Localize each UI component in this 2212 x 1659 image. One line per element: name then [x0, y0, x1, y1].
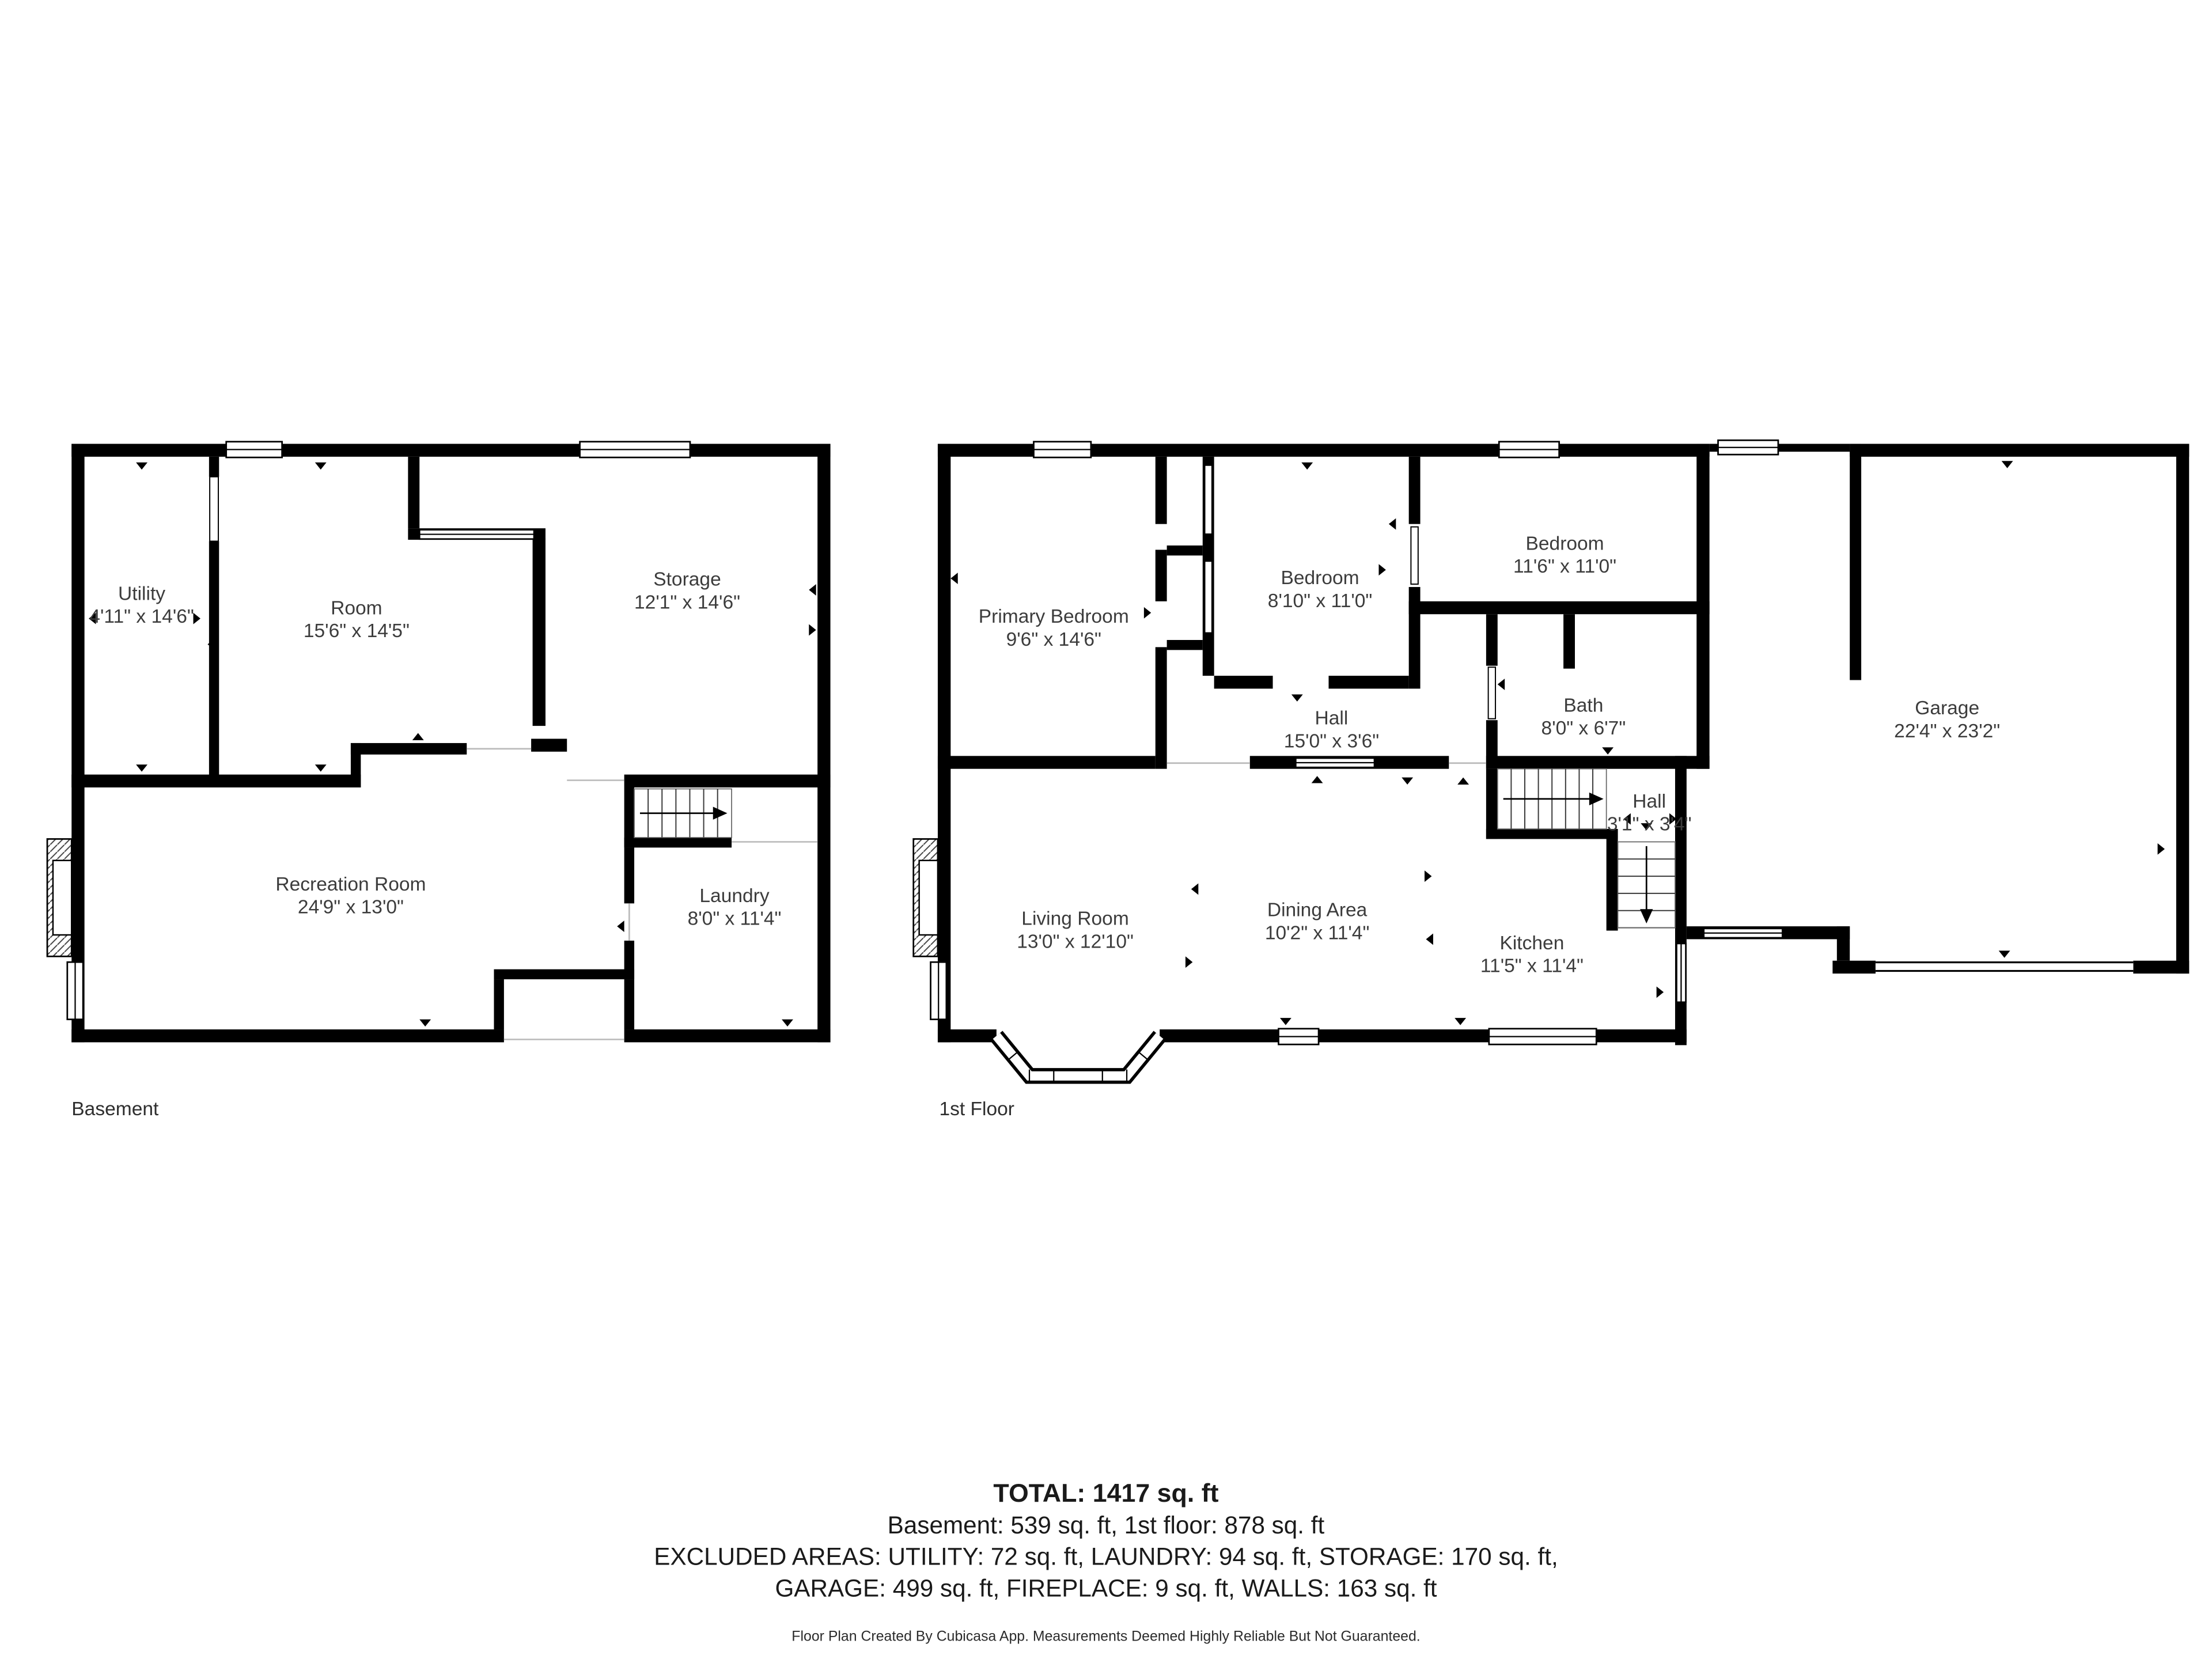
footer-disclaimer: Floor Plan Created By Cubicasa App. Meas…: [0, 1629, 2212, 1645]
room-label-living-room: Living Room 13'0" x 12'10": [1017, 908, 1134, 952]
room-dims: 22'4" x 23'2": [1894, 719, 2000, 742]
floorplan-page: Utility 4'11" x 14'6" Room 15'6" x 14'5"…: [0, 0, 2212, 1658]
room-name: Living Room: [1017, 908, 1134, 930]
floorplan-canvas: [0, 0, 2212, 1658]
first-floor-fireplace: [914, 839, 938, 956]
garage-door: [1876, 961, 2133, 972]
room-name: Bedroom: [1513, 533, 1616, 555]
room-name: Hall: [1607, 790, 1692, 813]
room-label-recreation-room: Recreation Room 24'9" x 13'0": [275, 873, 426, 918]
room-name: Bedroom: [1268, 567, 1373, 589]
first-floor-thresholds: [1167, 763, 1675, 928]
room-label-garage: Garage 22'4" x 23'2": [1894, 697, 2000, 741]
room-name: Primary Bedroom: [979, 605, 1129, 628]
room-name: Recreation Room: [275, 873, 426, 896]
room-name: Kitchen: [1480, 932, 1584, 955]
room-name: Garage: [1894, 697, 2000, 719]
room-name: Laundry: [688, 885, 782, 907]
room-dims: 4'11" x 14'6": [89, 605, 194, 627]
room-name: Utility: [89, 583, 194, 605]
room-dims: 15'0" x 3'6": [1284, 729, 1379, 752]
room-label-hall: Hall 15'0" x 3'6": [1284, 707, 1379, 752]
room-label-primary-bedroom: Primary Bedroom 9'6" x 14'6": [979, 605, 1129, 650]
first-floor-stairs-down: [1618, 842, 1675, 927]
basement-floorplan: [47, 442, 831, 1043]
room-label-utility: Utility 4'11" x 14'6": [89, 583, 194, 627]
summary-floor-areas: Basement: 539 sq. ft, 1st floor: 878 sq.…: [0, 1512, 2212, 1541]
room-dims: 10'2" x 11'4": [1265, 921, 1370, 944]
room-dims: 8'0" x 11'4": [688, 907, 782, 930]
summary-excluded-areas-1: EXCLUDED AREAS: UTILITY: 72 sq. ft, LAUN…: [0, 1543, 2212, 1572]
room-dims: 8'10" x 11'0": [1268, 589, 1373, 612]
room-name: Dining Area: [1265, 899, 1370, 922]
bay-window: [997, 1036, 1160, 1082]
room-dims: 13'0" x 12'10": [1017, 930, 1134, 952]
summary-total: TOTAL: 1417 sq. ft: [0, 1479, 2212, 1509]
room-label-storage: Storage 12'1" x 14'6": [634, 569, 740, 613]
room-dims: 12'1" x 14'6": [634, 590, 740, 613]
room-label-bedroom-small: Bedroom 8'10" x 11'0": [1268, 567, 1373, 611]
room-dims: 11'5" x 11'4": [1480, 955, 1584, 977]
first-floor-title: 1st Floor: [939, 1098, 1014, 1119]
room-dims: 9'6" x 14'6": [979, 628, 1129, 650]
room-name: Room: [304, 597, 410, 619]
room-dims: 3'1" x 3'4": [1607, 812, 1692, 835]
room-dims: 11'6" x 11'0": [1513, 555, 1616, 577]
room-label-hall-small: Hall 3'1" x 3'4": [1607, 790, 1692, 835]
room-label-bedroom-large: Bedroom 11'6" x 11'0": [1513, 533, 1616, 577]
room-label-laundry: Laundry 8'0" x 11'4": [688, 885, 782, 929]
summary-excluded-areas-2: GARAGE: 499 sq. ft, FIREPLACE: 9 sq. ft,…: [0, 1575, 2212, 1604]
room-name: Storage: [634, 569, 740, 591]
room-dims: 24'9" x 13'0": [275, 896, 426, 918]
room-label-bath: Bath 8'0" x 6'7": [1541, 694, 1626, 738]
room-dims: 8'0" x 6'7": [1541, 717, 1626, 739]
first-floor-stairs-upper: [1498, 769, 1607, 829]
room-name: Hall: [1284, 707, 1379, 730]
basement-floor-title: Basement: [71, 1098, 158, 1119]
room-label-kitchen: Kitchen 11'5" x 11'4": [1480, 932, 1584, 976]
room-dims: 15'6" x 14'5": [304, 619, 410, 642]
basement-windows: [67, 442, 690, 1020]
room-name: Bath: [1541, 694, 1626, 717]
basement-fireplace: [47, 839, 71, 956]
room-label-room: Room 15'6" x 14'5": [304, 597, 410, 641]
basement-stairs: [634, 789, 732, 838]
room-label-dining-area: Dining Area 10'2" x 11'4": [1265, 899, 1370, 944]
